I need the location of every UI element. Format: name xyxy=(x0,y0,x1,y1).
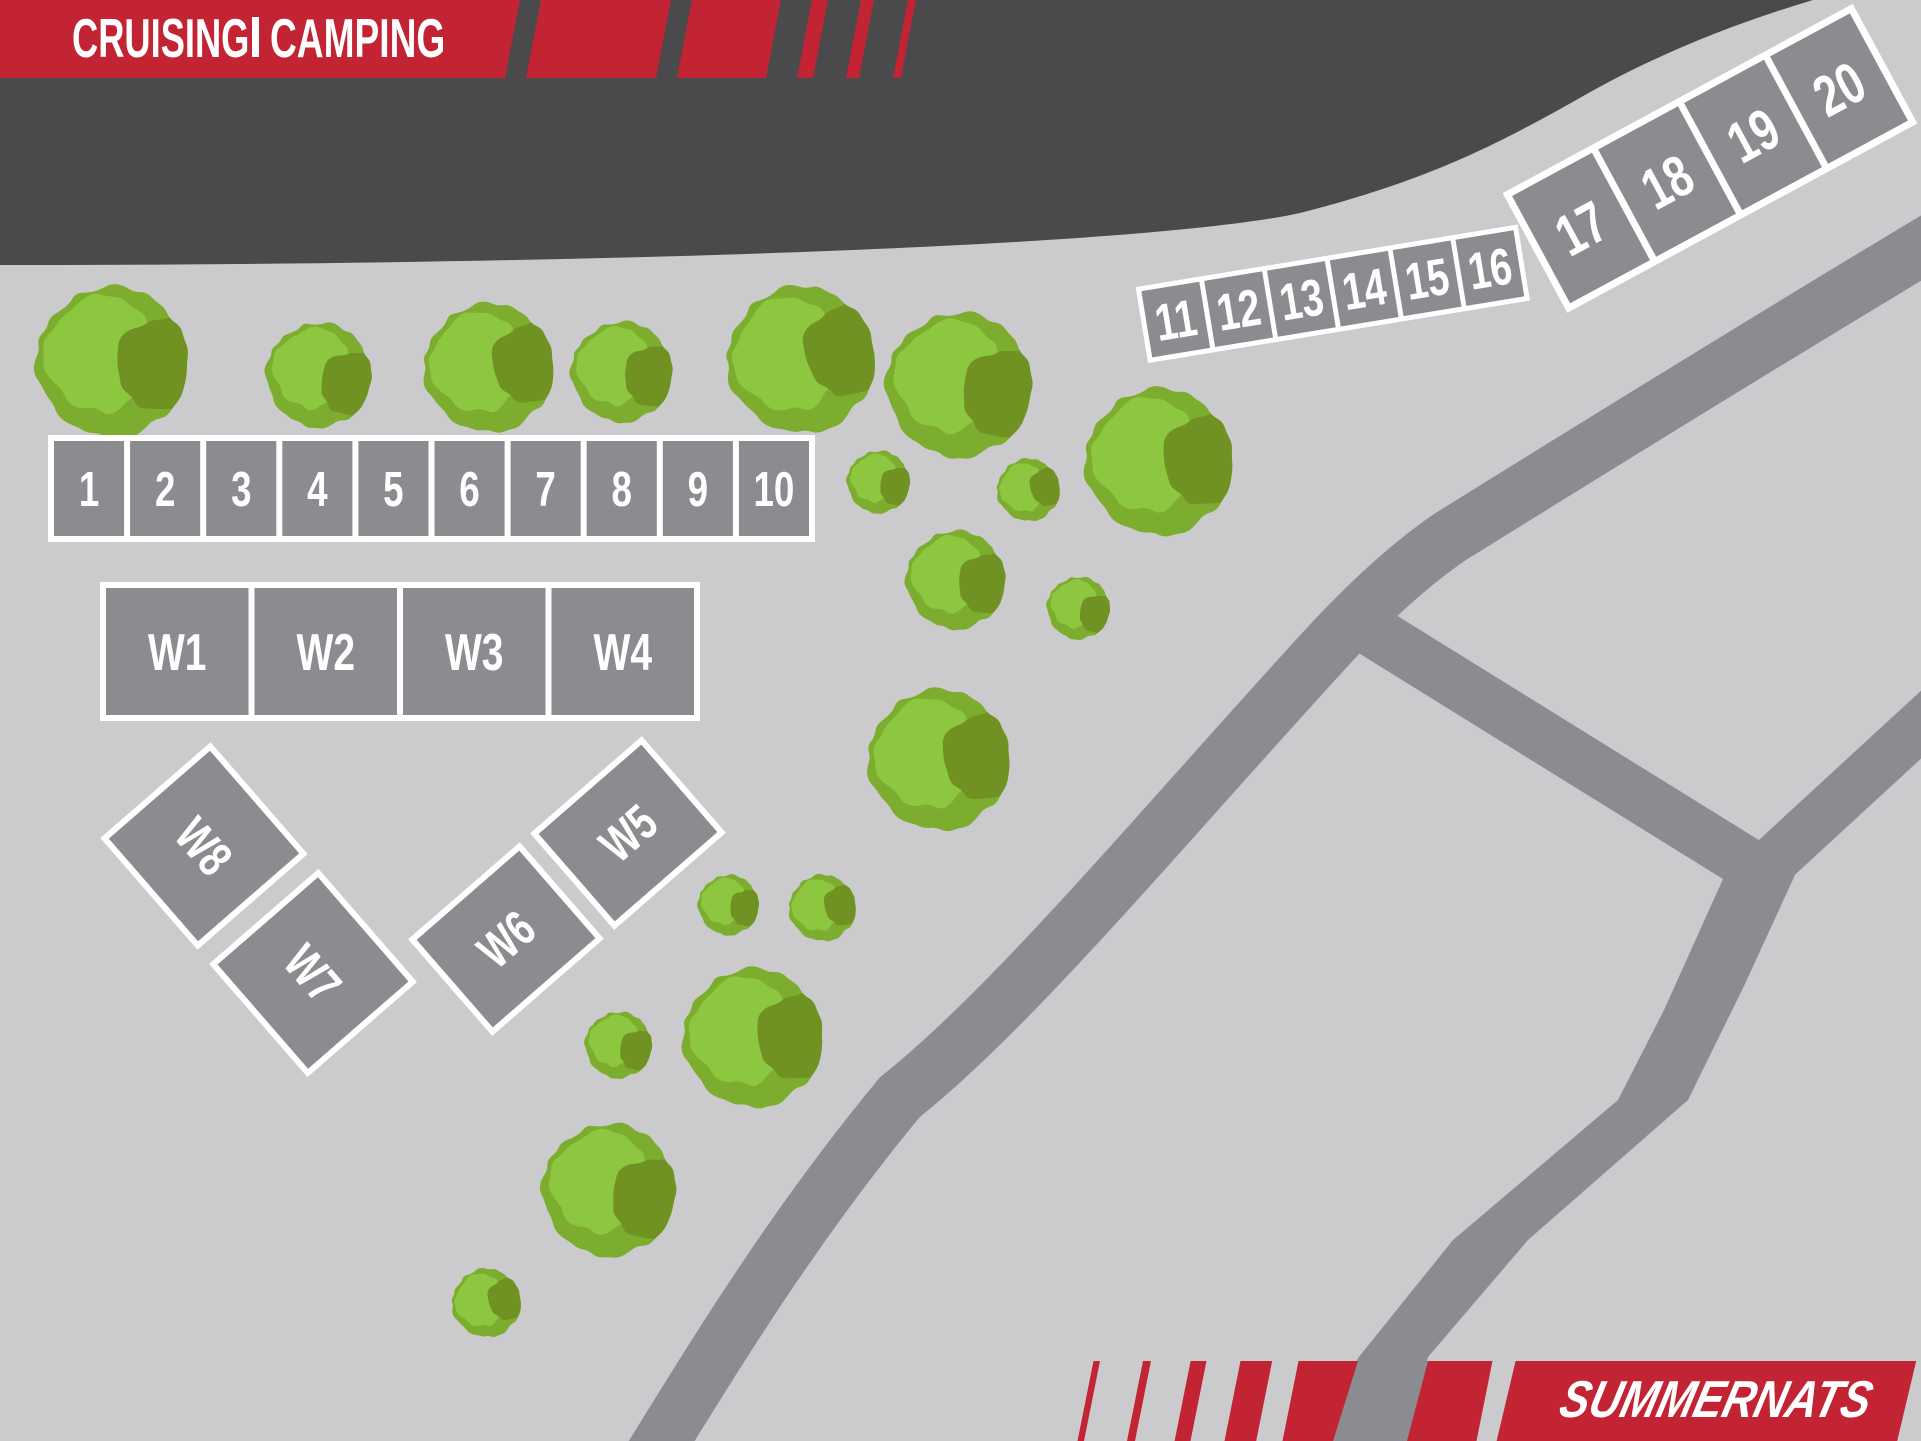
svg-text:10: 10 xyxy=(753,463,794,517)
svg-text:7: 7 xyxy=(535,463,555,517)
svg-text:4: 4 xyxy=(307,463,327,517)
svg-text:W3: W3 xyxy=(445,622,503,681)
svg-text:5: 5 xyxy=(383,463,403,517)
svg-text:6: 6 xyxy=(459,463,479,517)
svg-text:SUMMERNATS: SUMMERNATS xyxy=(1554,1371,1878,1428)
svg-text:9: 9 xyxy=(688,463,708,517)
svg-text:CAMPING: CAMPING xyxy=(270,8,445,69)
svg-text:1: 1 xyxy=(79,463,99,517)
svg-text:CRUISING: CRUISING xyxy=(72,7,249,68)
svg-text:W1: W1 xyxy=(148,622,206,681)
svg-text:W4: W4 xyxy=(594,622,653,681)
svg-text:3: 3 xyxy=(231,463,251,517)
svg-text:2: 2 xyxy=(155,463,175,517)
svg-text:W2: W2 xyxy=(297,622,355,681)
svg-text:8: 8 xyxy=(611,463,631,517)
